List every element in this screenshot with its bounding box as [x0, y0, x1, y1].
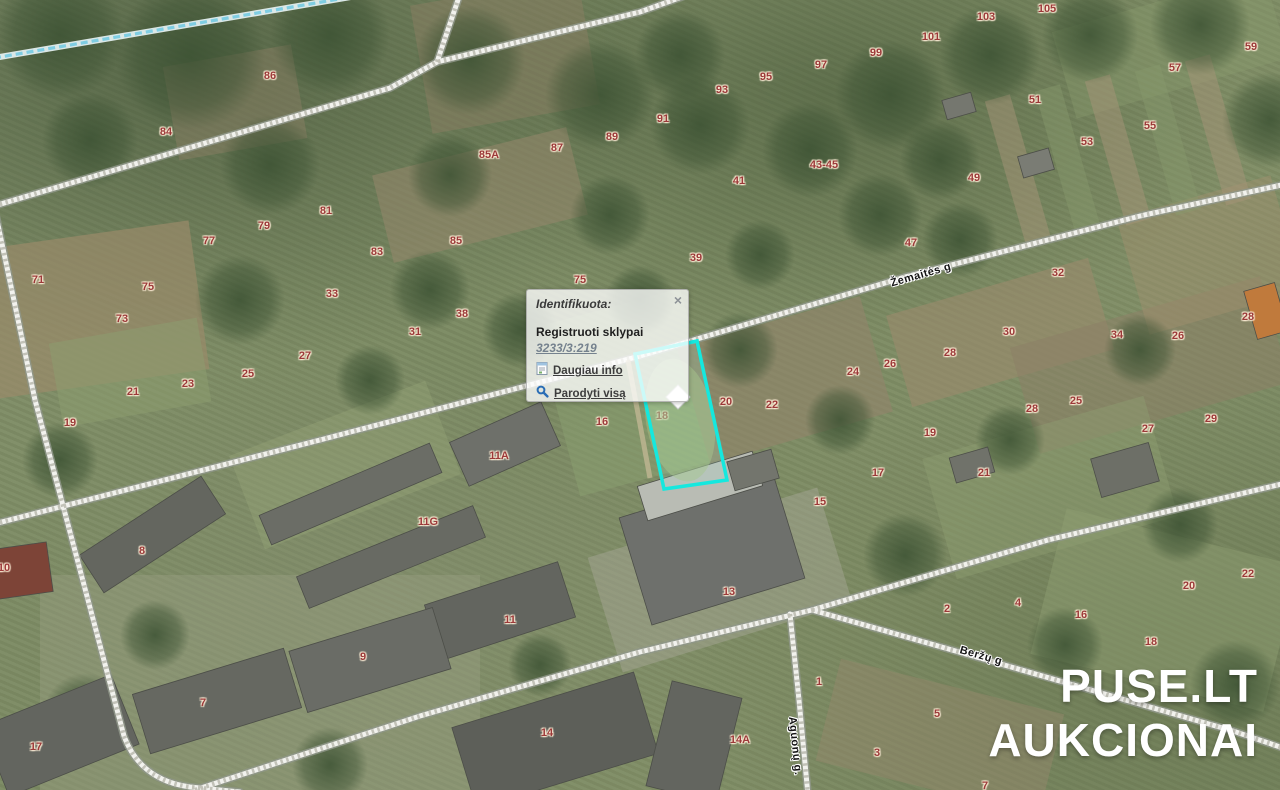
- layer-heading: Registruoti sklypai: [536, 325, 680, 339]
- popup-title: Identifikuota:: [536, 297, 611, 311]
- watermark: PUSE.LT AUKCIONAI: [988, 660, 1258, 768]
- watermark-line1: PUSE.LT: [988, 660, 1258, 714]
- parcel-id-link[interactable]: 3233/3:219: [536, 341, 597, 355]
- info-sheet-icon: [536, 362, 548, 380]
- map-canvas[interactable]: 868485A878991939597991011031055957515553…: [0, 0, 1280, 790]
- more-info-link[interactable]: Daugiau info: [553, 365, 623, 377]
- show-all-link[interactable]: Parodyti visą: [554, 388, 626, 400]
- identify-popup: Identifikuota: × Registruoti sklypai 323…: [526, 289, 689, 402]
- search-icon: [536, 385, 549, 403]
- watermark-line2: AUKCIONAI: [988, 714, 1258, 768]
- close-icon[interactable]: ×: [674, 293, 682, 307]
